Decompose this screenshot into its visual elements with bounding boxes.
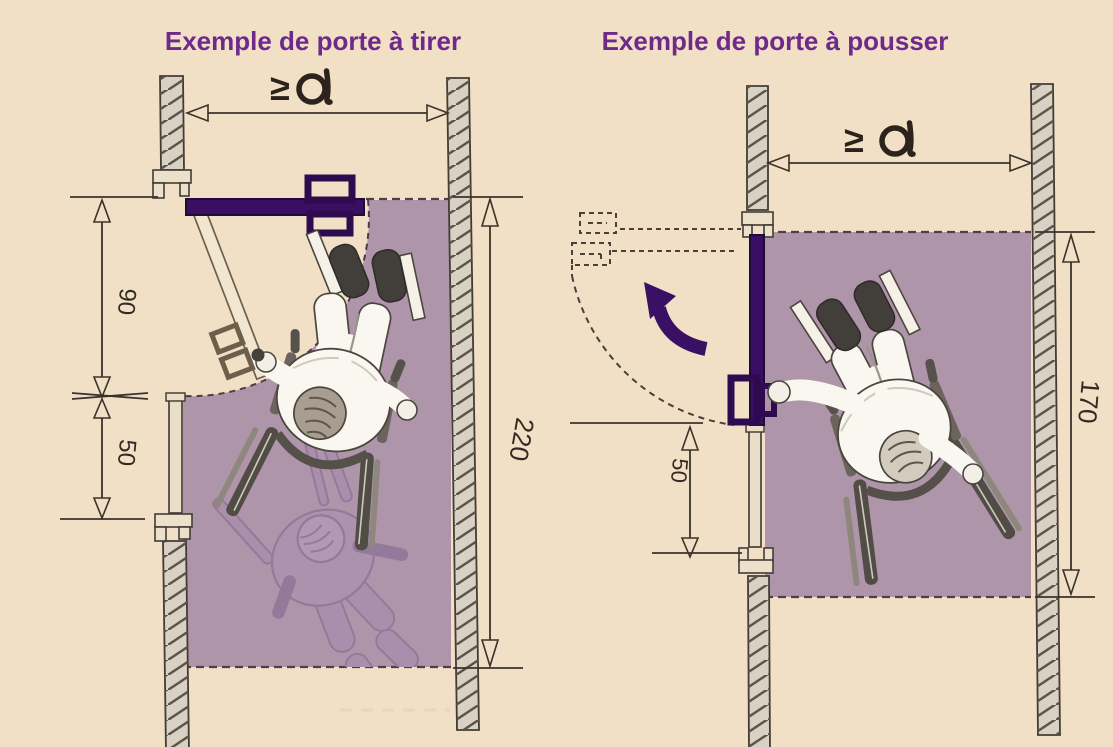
svg-text:Exemple de porte à pousser: Exemple de porte à pousser — [602, 26, 949, 56]
svg-text:Exemple de porte à tirer: Exemple de porte à tirer — [165, 26, 461, 56]
svg-text:90: 90 — [112, 287, 141, 316]
svg-text:170: 170 — [1072, 379, 1106, 425]
svg-text:50: 50 — [112, 438, 141, 467]
svg-text:≥: ≥ — [270, 67, 290, 108]
svg-text:50: 50 — [666, 457, 693, 484]
svg-text:≥: ≥ — [844, 119, 864, 160]
